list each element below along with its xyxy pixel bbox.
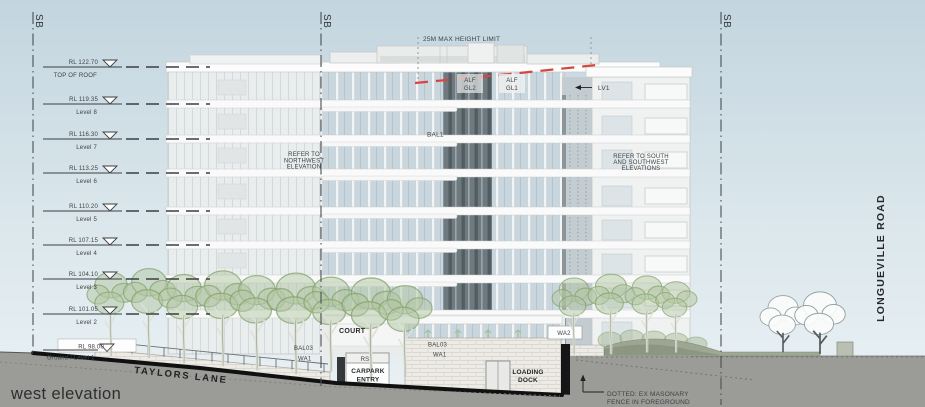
lv1-label: LV1 — [598, 85, 610, 92]
loading-dock-end-wall — [561, 344, 570, 397]
drawing-title: west elevation — [10, 385, 121, 403]
svg-text:RL 104.10: RL 104.10 — [69, 272, 99, 278]
rs-label: RS — [361, 357, 370, 363]
refer-northwest-label: REFER TO — [288, 152, 320, 158]
wa1-mid-label: WA1 — [433, 352, 447, 358]
height-limit-label: 25M MAX HEIGHT LIMIT — [423, 36, 500, 43]
svg-text:Level 6: Level 6 — [76, 179, 97, 185]
wa2-label: WA2 — [557, 331, 571, 337]
svg-text:ENTRY: ENTRY — [357, 377, 380, 384]
bal03-mid-label: BAL03 — [428, 342, 447, 348]
court-label: COURT — [339, 328, 366, 335]
alf-gl2-label: ALF — [464, 78, 476, 84]
bal1-label: BAL1 — [427, 132, 444, 139]
svg-text:RL 122.70: RL 122.70 — [69, 60, 99, 66]
longueville-road-label: LONGUEVILLE ROAD — [875, 194, 887, 322]
section-break-label: SB — [321, 14, 332, 28]
right-wing-parapet — [586, 67, 692, 77]
utility-box — [837, 342, 853, 356]
svg-text:GL2: GL2 — [464, 86, 476, 92]
svg-text:RL 101.05: RL 101.05 — [69, 307, 99, 313]
carpark-entry-label: CARPARK — [351, 368, 385, 375]
section-break-label: SB — [33, 14, 44, 28]
svg-text:Level 5: Level 5 — [76, 217, 97, 223]
svg-text:RL 107.15: RL 107.15 — [69, 238, 99, 244]
west-elevation-drawing: 25M MAX HEIGHT LIMIT SB SB SB RL 122.70 … — [0, 0, 925, 407]
svg-text:Level 3: Level 3 — [76, 285, 97, 291]
svg-text:Level 2: Level 2 — [76, 320, 97, 326]
svg-text:TOP OF ROOF: TOP OF ROOF — [54, 73, 97, 79]
svg-text:RL 116.30: RL 116.30 — [69, 132, 98, 138]
svg-text:Level 7: Level 7 — [76, 145, 97, 151]
svg-text:Level 4: Level 4 — [76, 251, 97, 257]
svg-text:FENCE IN FOREGROUND: FENCE IN FOREGROUND — [607, 399, 690, 406]
loading-dock-label: LOADING — [512, 369, 543, 376]
svg-text:RL 113.25: RL 113.25 — [69, 166, 98, 172]
svg-text:RL 119.35: RL 119.35 — [69, 97, 98, 103]
svg-text:DOCK: DOCK — [518, 377, 538, 384]
fence-note-text: DOTTED: EX MASONARY — [607, 391, 689, 398]
section-break-label: SB — [721, 14, 732, 28]
svg-text:ELEVATIONS: ELEVATIONS — [622, 166, 661, 172]
wa1-left-label: WA1 — [298, 356, 312, 362]
alf-gl1-label: ALF — [506, 78, 518, 84]
svg-text:Ground / Level 1: Ground / Level 1 — [47, 356, 95, 362]
svg-text:GL1: GL1 — [506, 86, 518, 92]
svg-text:NORTHWEST: NORTHWEST — [284, 158, 324, 164]
svg-text:RL 110.20: RL 110.20 — [69, 204, 98, 210]
svg-text:ELEVATION: ELEVATION — [287, 165, 322, 171]
bal03-left-label: BAL03 — [294, 346, 313, 352]
svg-text:RL 98.00: RL 98.00 — [78, 345, 104, 351]
svg-text:Level 8: Level 8 — [76, 110, 97, 116]
